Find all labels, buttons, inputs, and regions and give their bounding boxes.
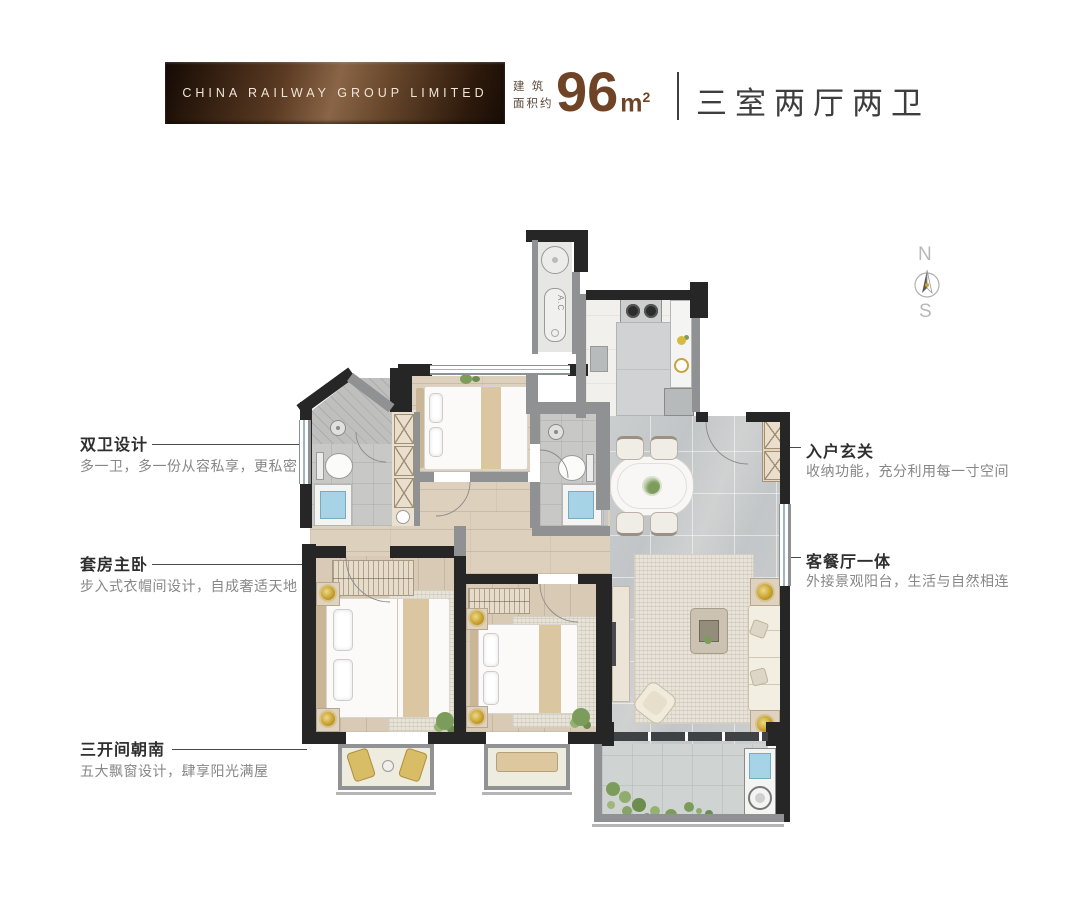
callout-south-bays-line bbox=[172, 749, 307, 750]
area-number: 96 bbox=[556, 64, 618, 120]
area-value: 96 m2 bbox=[556, 64, 650, 120]
callout-living-title: 客餐厅一体 bbox=[806, 548, 891, 572]
header-divider bbox=[677, 72, 679, 120]
floor-plan: A.C bbox=[298, 230, 794, 832]
callout-south-bays-subtitle: 五大飘窗设计，肆享阳光满屋 bbox=[80, 761, 269, 781]
callout-foyer-title: 入户玄关 bbox=[806, 438, 874, 462]
callout-foyer-subtitle: 收纳功能，充分利用每一寸空间 bbox=[806, 461, 1009, 481]
area-prefix-line1: 建 筑 bbox=[513, 79, 554, 96]
brand-banner: CHINA RAILWAY GROUP LIMITED bbox=[165, 62, 505, 124]
callout-dual-bath-subtitle: 多一卫，多一份从容私享，更私密 bbox=[80, 456, 298, 476]
page: { "header": { "brand_banner": "CHINA RAI… bbox=[0, 0, 1080, 899]
compass-north-label: N bbox=[918, 244, 932, 266]
area-unit: m2 bbox=[620, 89, 650, 118]
callout-dual-bath-line bbox=[152, 444, 307, 445]
compass-icon bbox=[911, 266, 943, 302]
callout-master-suite-subtitle: 步入式衣帽间设计，自成奢适天地 bbox=[80, 576, 298, 596]
door-arcs bbox=[298, 230, 794, 832]
compass-south-label: S bbox=[919, 301, 932, 323]
area-prefix-line2: 面积约 bbox=[513, 96, 554, 113]
callout-dual-bath-title: 双卫设计 bbox=[80, 431, 148, 455]
callout-living-subtitle: 外接景观阳台，生活与自然相连 bbox=[806, 571, 1009, 591]
area-prefix: 建 筑 面积约 bbox=[513, 79, 554, 113]
layout-title: 三室两厅两卫 bbox=[696, 78, 930, 123]
callout-south-bays-title: 三开间朝南 bbox=[80, 736, 165, 760]
callout-master-suite-title: 套房主卧 bbox=[80, 551, 148, 575]
callout-master-suite-line bbox=[152, 564, 307, 565]
